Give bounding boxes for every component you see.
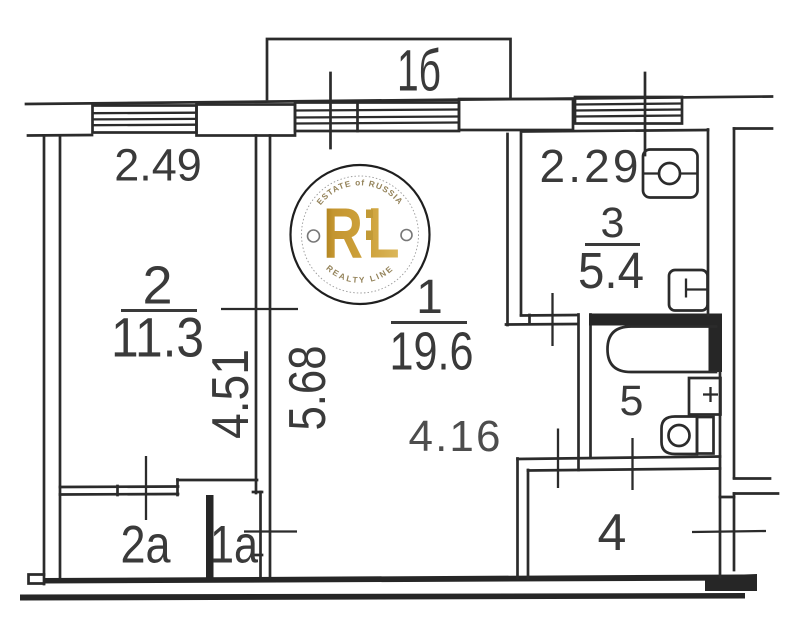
svg-text:4.16: 4.16 [409, 412, 501, 461]
svg-text:5.68: 5.68 [279, 346, 337, 431]
svg-text:5.4: 5.4 [578, 242, 644, 299]
svg-text:4.51: 4.51 [202, 349, 260, 439]
svg-text:2.29: 2.29 [540, 140, 639, 192]
svg-text:2.49: 2.49 [114, 140, 202, 191]
svg-text:11.3: 11.3 [111, 306, 204, 369]
svg-text:1б: 1б [397, 39, 441, 104]
svg-text:3: 3 [601, 199, 625, 247]
svg-text:1: 1 [416, 271, 443, 324]
svg-text:4: 4 [598, 504, 627, 562]
svg-text:2а: 2а [121, 516, 171, 575]
svg-text:19.6: 19.6 [390, 322, 474, 382]
svg-text:R: R [323, 195, 363, 274]
svg-text:1а: 1а [210, 516, 258, 575]
svg-text:5: 5 [620, 377, 644, 425]
